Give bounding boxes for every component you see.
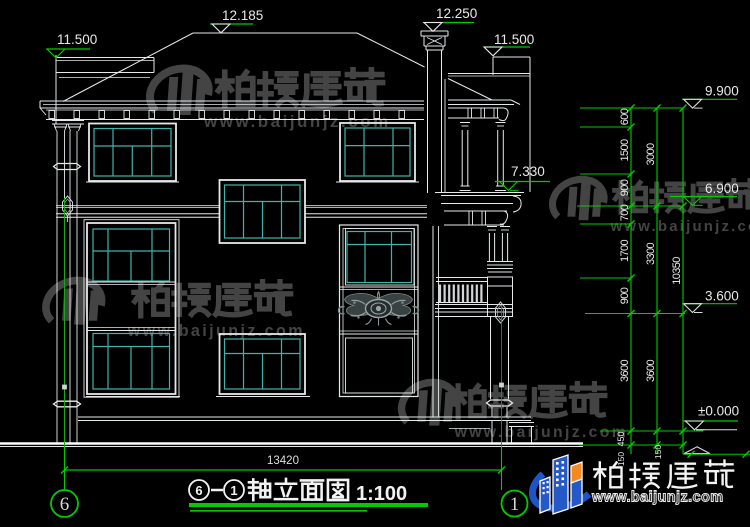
svg-text:3600: 3600 bbox=[645, 359, 657, 382]
svg-text:3300: 3300 bbox=[645, 242, 657, 265]
svg-text:150: 150 bbox=[616, 452, 626, 466]
svg-text:700: 700 bbox=[619, 204, 631, 221]
svg-text:450: 450 bbox=[616, 431, 626, 446]
svg-text:900: 900 bbox=[619, 287, 631, 304]
svg-text:7.330: 7.330 bbox=[511, 164, 545, 179]
svg-text:www.baijunjz.com: www.baijunjz.com bbox=[591, 490, 724, 506]
svg-text:1:100: 1:100 bbox=[356, 483, 407, 505]
svg-text:11.500: 11.500 bbox=[494, 32, 534, 47]
svg-text:10350: 10350 bbox=[671, 257, 683, 285]
svg-text:1: 1 bbox=[510, 494, 520, 515]
svg-text:600: 600 bbox=[619, 108, 631, 125]
svg-text:1700: 1700 bbox=[619, 239, 631, 262]
svg-text:±0.000: ±0.000 bbox=[698, 404, 739, 419]
svg-text:3600: 3600 bbox=[619, 359, 631, 382]
svg-text:13420: 13420 bbox=[267, 455, 299, 467]
svg-text:6: 6 bbox=[195, 483, 202, 498]
svg-text:1: 1 bbox=[230, 483, 237, 498]
svg-text:6.900: 6.900 bbox=[705, 181, 739, 196]
svg-text:1500: 1500 bbox=[619, 139, 631, 162]
svg-text:12.250: 12.250 bbox=[436, 6, 477, 21]
svg-text:6: 6 bbox=[60, 494, 70, 515]
svg-text:11.500: 11.500 bbox=[57, 32, 97, 47]
svg-text:150: 150 bbox=[653, 445, 663, 459]
svg-text:12.185: 12.185 bbox=[222, 8, 263, 23]
svg-text:900: 900 bbox=[619, 179, 631, 196]
svg-text:9.900: 9.900 bbox=[705, 84, 739, 99]
svg-text:3.600: 3.600 bbox=[705, 289, 739, 304]
svg-text:3000: 3000 bbox=[645, 143, 657, 166]
svg-text:www.baijunjz.com: www.baijunjz.com bbox=[454, 424, 629, 441]
